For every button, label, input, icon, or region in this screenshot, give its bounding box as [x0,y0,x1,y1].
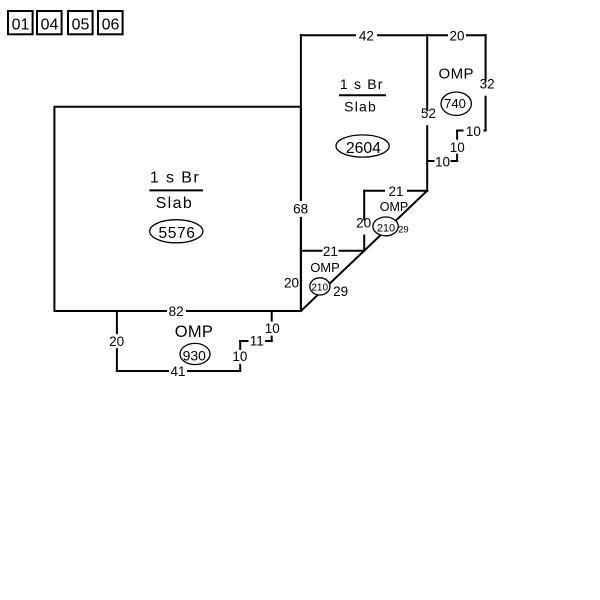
svg-text:32: 32 [480,77,495,92]
svg-text:OMP: OMP [380,200,408,214]
svg-text:10: 10 [265,321,280,336]
svg-text:68: 68 [293,202,308,217]
svg-text:10: 10 [450,140,465,155]
svg-text:82: 82 [169,304,184,319]
svg-text:OMP: OMP [310,260,340,275]
svg-text:52: 52 [421,106,436,121]
svg-text:21: 21 [323,244,338,259]
svg-text:41: 41 [170,364,185,379]
svg-text:Slab: Slab [156,195,194,212]
svg-text:10: 10 [232,349,247,364]
svg-text:05: 05 [72,17,90,34]
svg-text:20: 20 [356,216,371,231]
svg-text:29: 29 [333,284,348,299]
svg-text:Slab: Slab [344,98,377,114]
svg-text:OMP: OMP [439,66,474,83]
svg-text:5576: 5576 [159,225,196,242]
svg-text:210: 210 [377,223,395,235]
svg-text:10: 10 [466,124,481,139]
svg-text:2604: 2604 [346,140,381,157]
svg-text:20: 20 [449,28,464,43]
svg-text:1 s Br: 1 s Br [150,170,200,187]
svg-text:04: 04 [41,17,59,34]
svg-text:01: 01 [12,17,30,34]
svg-text:42: 42 [359,28,374,43]
svg-text:20: 20 [284,276,299,291]
svg-text:11: 11 [250,334,264,349]
svg-text:740: 740 [444,96,466,111]
svg-text:930: 930 [183,347,207,363]
svg-text:20: 20 [109,334,124,349]
svg-text:29: 29 [398,225,409,236]
svg-text:21: 21 [388,184,403,199]
svg-text:10: 10 [435,154,450,169]
svg-text:210: 210 [311,283,328,294]
svg-text:06: 06 [102,17,120,34]
svg-text:OMP: OMP [175,323,213,341]
svg-text:1 s Br: 1 s Br [340,76,384,92]
